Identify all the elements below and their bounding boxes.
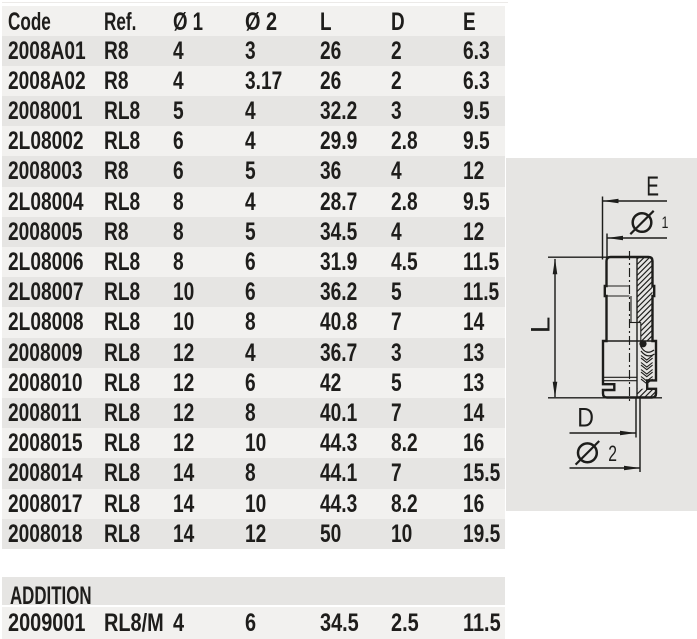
svg-text:E: E bbox=[646, 171, 659, 201]
svg-text:2: 2 bbox=[608, 443, 617, 467]
svg-text:1: 1 bbox=[662, 214, 669, 232]
svg-text:D: D bbox=[577, 403, 594, 433]
svg-text:L: L bbox=[526, 317, 556, 334]
